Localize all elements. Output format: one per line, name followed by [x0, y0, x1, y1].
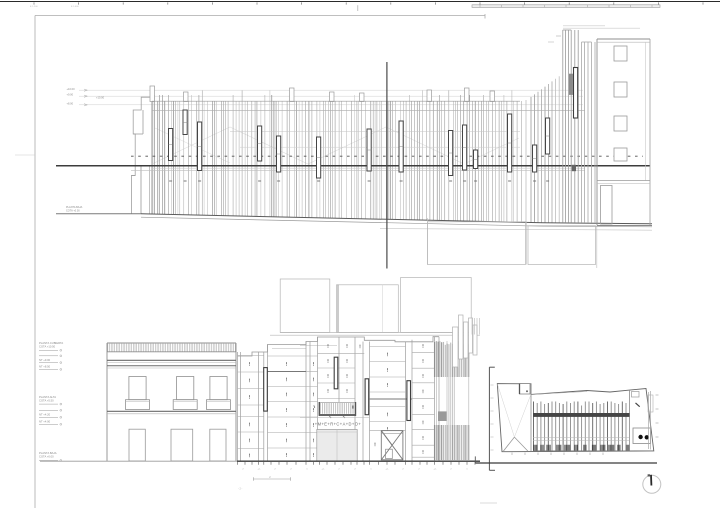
svg-text:PLANTA CUBIERTA: PLANTA CUBIERTA — [39, 341, 63, 345]
svg-text:-2-: -2- — [386, 469, 389, 471]
svg-text:NT +4.20: NT +4.20 — [39, 412, 51, 416]
svg-text:NT +4.00: NT +4.00 — [39, 419, 51, 423]
svg-text:NT +8.50: NT +8.50 — [39, 365, 51, 369]
svg-text:+M+E+R+C+A+D+O+: +M+E+R+C+A+D+O+ — [315, 421, 362, 426]
svg-text:+8.00: +8.00 — [67, 101, 74, 105]
svg-text:-2-: -2- — [434, 469, 437, 471]
svg-text:-2-: -2- — [322, 469, 325, 471]
svg-text:COTA +5.50: COTA +5.50 — [39, 398, 54, 402]
svg-text:- 2 -: - 2 - — [238, 487, 242, 490]
svg-text:-2-: -2- — [258, 469, 261, 471]
svg-text:COTA +10.50: COTA +10.50 — [39, 344, 56, 348]
svg-text:COTA +0.00: COTA +0.00 — [39, 454, 54, 458]
svg-text:E 1:200: E 1:200 — [30, 6, 38, 8]
svg-text:PLANTA ALTA: PLANTA ALTA — [39, 395, 56, 399]
svg-text:+9.00: +9.00 — [67, 93, 74, 97]
svg-text:E 1:400: E 1:400 — [71, 6, 79, 8]
svg-text:COTA +0.00: COTA +0.00 — [66, 209, 80, 212]
svg-text:+10.00: +10.00 — [67, 87, 76, 91]
svg-text:NT +9.00: NT +9.00 — [39, 358, 51, 362]
